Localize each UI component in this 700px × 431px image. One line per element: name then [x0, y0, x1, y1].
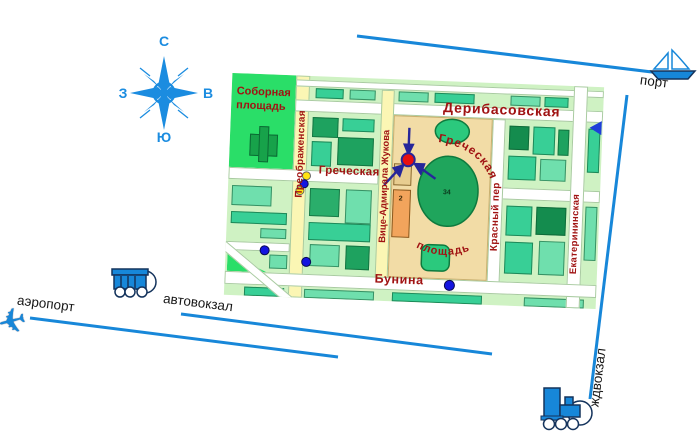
oval-number: 34 [443, 189, 451, 196]
compass-label-west: З [119, 85, 128, 101]
label-grecheskaya: Греческая [318, 164, 379, 178]
bus-icon [110, 264, 158, 300]
scheme-page: С З В Ю 2 34 [0, 0, 700, 431]
edge-arrow [589, 121, 602, 135]
boat-icon [648, 48, 700, 82]
compass-rose: С З В Ю [118, 26, 218, 144]
building-number: 2 [399, 195, 403, 202]
airport-line [30, 318, 338, 357]
port-line [357, 36, 660, 73]
compass-point-north [158, 56, 170, 93]
label-bunina: Бунина [374, 272, 424, 288]
compass-point-west [130, 87, 164, 99]
city-map: 2 34 Греческая площадь [224, 73, 604, 309]
compass-point-east [164, 87, 198, 99]
compass-label-east: В [203, 85, 213, 101]
train-icon [540, 386, 594, 431]
destination-marker [401, 153, 414, 166]
compass-label-north: С [159, 33, 169, 49]
bus-line [181, 314, 492, 354]
compass-label-south: Ю [157, 129, 171, 144]
compass-point-south [158, 93, 170, 130]
